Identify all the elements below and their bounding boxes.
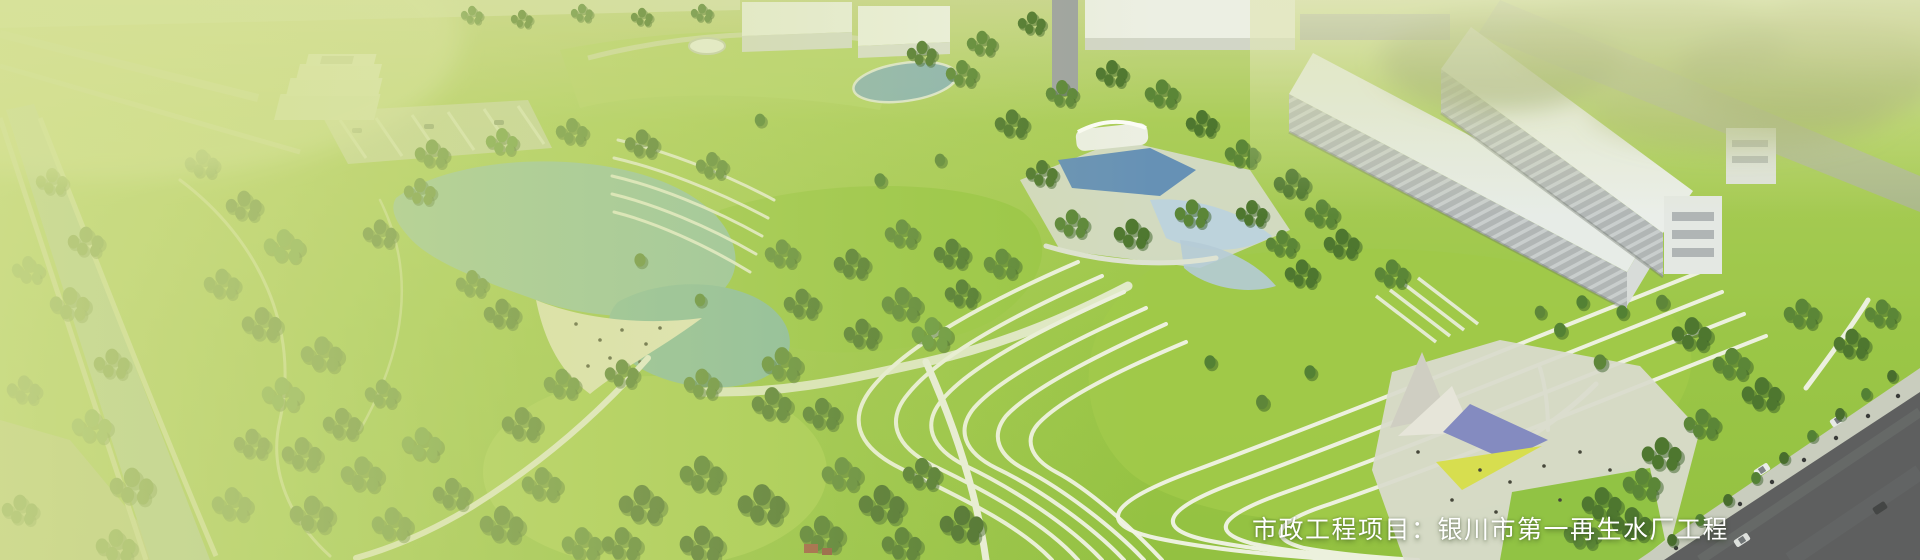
- park-aerial-render: [0, 0, 1920, 560]
- caption-text: 市政工程项目：银川市第一再生水厂工程: [1252, 515, 1729, 544]
- global-tint: [0, 0, 1920, 560]
- photo-caption: 市政工程项目：银川市第一再生水厂工程: [1252, 514, 1729, 546]
- hero-banner: 市政工程项目：银川市第一再生水厂工程: [0, 0, 1920, 560]
